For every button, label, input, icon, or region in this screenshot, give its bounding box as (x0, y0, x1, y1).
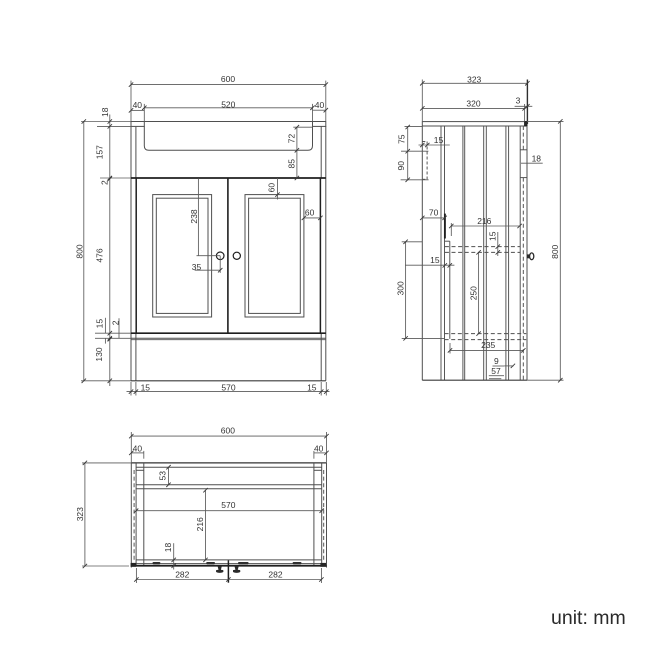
svg-text:15: 15 (487, 231, 497, 241)
svg-text:2: 2 (111, 320, 121, 325)
svg-text:520: 520 (221, 99, 235, 109)
svg-text:90: 90 (396, 161, 406, 171)
svg-text:70: 70 (429, 207, 439, 217)
svg-text:216: 216 (195, 517, 205, 531)
svg-text:238: 238 (189, 209, 199, 223)
svg-text:3: 3 (516, 96, 521, 106)
svg-text:85: 85 (286, 159, 296, 169)
svg-text:570: 570 (221, 500, 235, 510)
svg-text:800: 800 (74, 244, 84, 258)
svg-text:35: 35 (192, 262, 202, 272)
svg-text:570: 570 (221, 383, 235, 393)
svg-text:600: 600 (221, 426, 235, 436)
svg-text:72: 72 (287, 134, 297, 144)
svg-text:40: 40 (133, 444, 143, 454)
svg-text:15: 15 (430, 255, 440, 265)
svg-text:250: 250 (468, 286, 478, 300)
svg-text:235: 235 (481, 340, 495, 350)
svg-text:53: 53 (157, 471, 167, 481)
svg-text:15: 15 (434, 135, 444, 145)
svg-text:60: 60 (267, 183, 277, 193)
svg-text:323: 323 (467, 74, 481, 84)
svg-text:157: 157 (94, 145, 104, 159)
svg-text:800: 800 (550, 244, 560, 258)
svg-text:320: 320 (466, 99, 480, 109)
svg-text:60: 60 (305, 208, 315, 218)
svg-text:476: 476 (94, 248, 104, 262)
svg-text:216: 216 (477, 216, 491, 226)
svg-text:18: 18 (163, 543, 173, 553)
svg-text:2: 2 (100, 180, 110, 185)
svg-text:18: 18 (532, 153, 542, 163)
svg-text:130: 130 (94, 347, 104, 361)
svg-text:15: 15 (94, 319, 104, 329)
svg-text:282: 282 (175, 570, 189, 580)
svg-text:40: 40 (314, 444, 324, 454)
svg-text:600: 600 (221, 74, 235, 84)
svg-text:40: 40 (315, 100, 325, 110)
svg-text:15: 15 (141, 383, 151, 393)
svg-text:75: 75 (397, 134, 407, 144)
svg-text:unit: mm: unit: mm (551, 607, 626, 629)
svg-text:300: 300 (395, 281, 405, 295)
svg-text:282: 282 (268, 570, 282, 580)
svg-text:57: 57 (491, 366, 501, 376)
svg-text:9: 9 (494, 356, 499, 366)
svg-text:18: 18 (100, 107, 110, 117)
svg-text:323: 323 (75, 507, 85, 521)
svg-text:15: 15 (307, 383, 317, 393)
svg-text:40: 40 (133, 100, 143, 110)
